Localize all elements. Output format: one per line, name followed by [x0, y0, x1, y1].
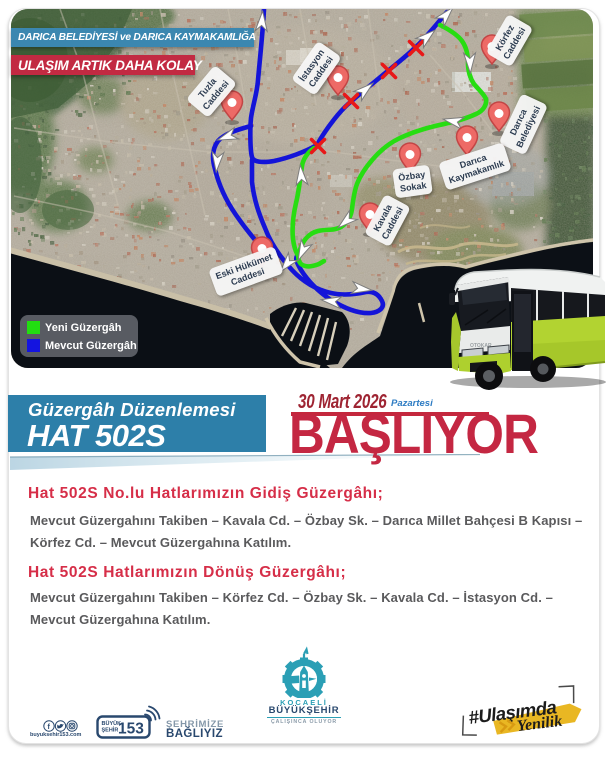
svg-text:f: f	[48, 724, 51, 731]
svg-text:ŞEHİR: ŞEHİR	[102, 727, 119, 734]
svg-text:153: 153	[118, 721, 144, 738]
